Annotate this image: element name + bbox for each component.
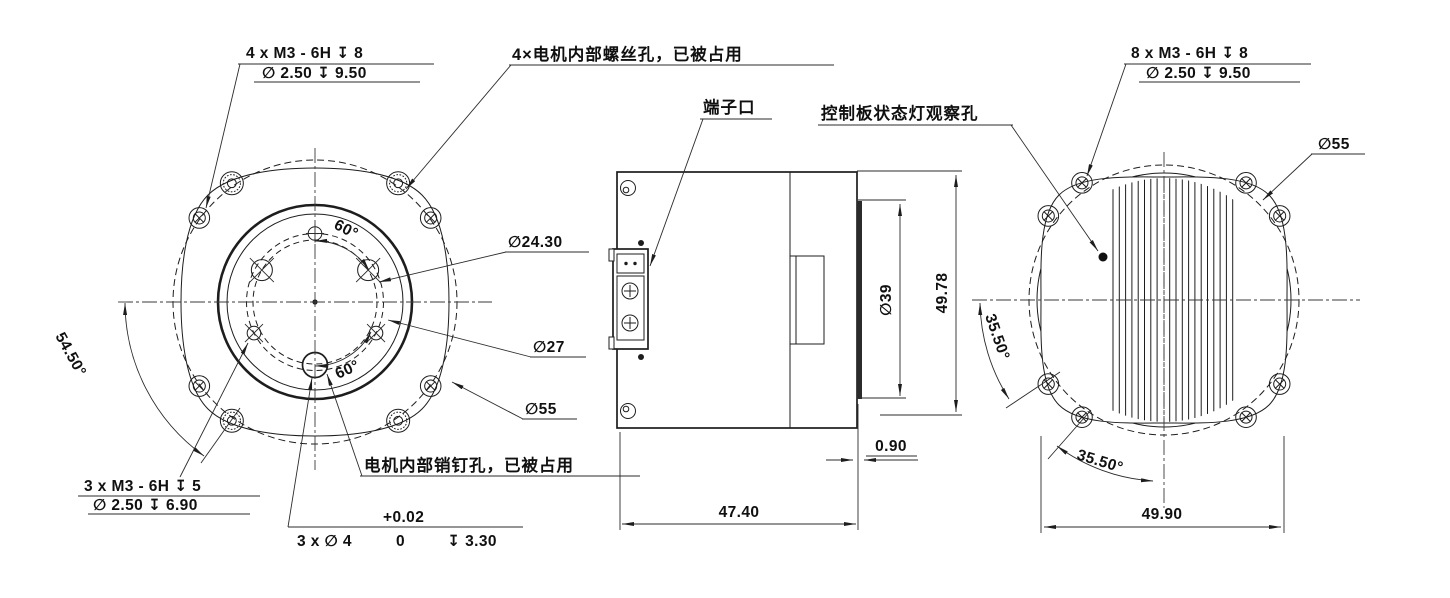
pin-callout-tol-upper: +0.02 [383,509,424,526]
dim-label-0-90: 0.90 [875,438,907,455]
dim-label-49-90: 49.90 [1142,506,1183,523]
dim-label-dia55-back: ∅55 [1318,136,1350,153]
side-slot [790,256,824,344]
dim-label-dia55-front: ∅55 [525,401,557,418]
status-light-hole [1099,253,1108,262]
dim-label-49-78: 49.78 [934,273,951,314]
connector-tab-bottom [609,337,614,349]
connector-pin-dot [624,262,627,265]
pin-callout-tol-lower: 0 [396,533,405,550]
callout-back-top-line2: ∅ 2.50 ↧ 9.50 [1146,65,1251,82]
terminal-connector [609,249,648,349]
leader-dia55-front [452,382,523,419]
pin-callout-suffix: ↧ 3.30 [447,533,497,550]
callout-front-bottom-line2: ∅ 2.50 ↧ 6.90 [93,497,198,514]
side-dot [638,240,644,246]
leader-dia55-back [1263,154,1312,200]
pin-callout-prefix: 3 x ∅ 4 [297,533,352,550]
side-dot [638,354,644,360]
label-status-light-hole: 控制板状态灯观察孔 [821,103,979,123]
note-pin-holes: 电机内部销钉孔，已被占用 [364,455,574,475]
side-view [609,172,862,428]
dim-label-dia2430: ∅24.30 [508,234,562,251]
dim-label-dia39: ∅39 [878,284,895,316]
drawing-canvas: 4 x M3 - 6H ↧ 8 ∅ 2.50 ↧ 9.50 4×电机内部螺丝孔，… [0,0,1450,598]
engineering-drawing: 4 x M3 - 6H ↧ 8 ∅ 2.50 ↧ 9.50 4×电机内部螺丝孔，… [0,0,1450,598]
callout-front-top-line1: 4 x M3 - 6H ↧ 8 [246,45,363,62]
callout-front-bottom-line1: 3 x M3 - 6H ↧ 5 [84,478,201,495]
dim-label-47-40: 47.40 [719,504,760,521]
dim-label-35-50-bottom: 35.50° [1075,447,1125,477]
label-terminal-port: 端子口 [703,97,756,117]
side-heatsink-edge [857,201,863,399]
dim-label-dia27: ∅27 [533,339,565,356]
callout-back-top-line1: 8 x M3 - 6H ↧ 8 [1131,45,1248,62]
dim-label-54-50: 54.50° [52,330,90,380]
callout-front-top-line2: ∅ 2.50 ↧ 9.50 [262,65,367,82]
connector-pin-dot [633,262,636,265]
dim-label-35-50-left: 35.50° [981,312,1013,362]
leader-back-top-callout [1087,64,1126,176]
leader-motor-screw-note [406,65,511,189]
connector-tab-top [609,249,614,261]
note-motor-screw-holes: 4×电机内部螺丝孔，已被占用 [512,44,743,64]
